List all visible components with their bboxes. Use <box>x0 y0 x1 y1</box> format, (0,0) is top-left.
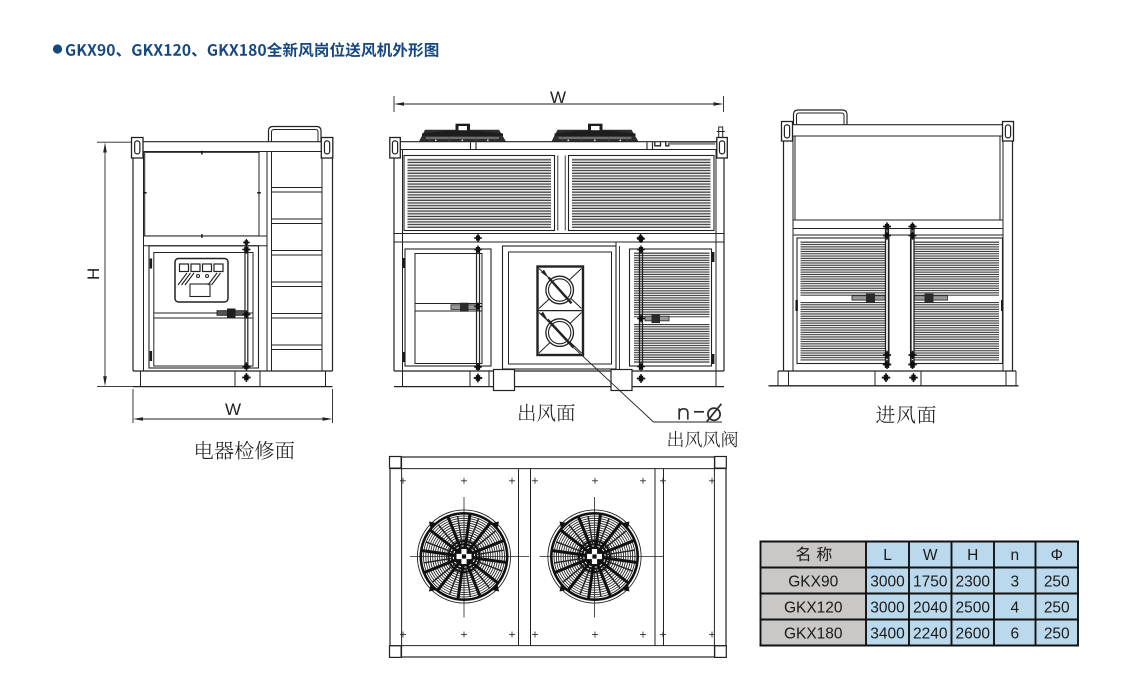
svg-text:H: H <box>967 547 978 564</box>
svg-text:2240: 2240 <box>913 626 948 643</box>
svg-text:W: W <box>225 400 241 419</box>
svg-text:GKX180: GKX180 <box>784 626 843 643</box>
svg-text:2500: 2500 <box>956 600 991 617</box>
svg-text:2300: 2300 <box>956 574 991 591</box>
svg-text:250: 250 <box>1044 600 1070 617</box>
svg-text:W: W <box>550 88 566 107</box>
svg-text:GKX120: GKX120 <box>784 600 843 617</box>
svg-text:n: n <box>1010 547 1019 564</box>
svg-text:Φ: Φ <box>1051 547 1063 564</box>
svg-text:3000: 3000 <box>870 600 905 617</box>
svg-text:2600: 2600 <box>956 626 991 643</box>
svg-text:3000: 3000 <box>870 574 905 591</box>
svg-text:3400: 3400 <box>870 626 905 643</box>
svg-text:H: H <box>84 268 103 280</box>
svg-text:6: 6 <box>1010 626 1019 643</box>
svg-text:2040: 2040 <box>913 600 948 617</box>
svg-text:GKX90: GKX90 <box>788 574 838 591</box>
svg-text:L: L <box>883 547 892 564</box>
svg-text:1750: 1750 <box>913 574 948 591</box>
svg-text:W: W <box>923 547 938 564</box>
svg-text:250: 250 <box>1044 626 1070 643</box>
svg-text:4: 4 <box>1010 600 1019 617</box>
svg-text:3: 3 <box>1010 574 1019 591</box>
svg-text:250: 250 <box>1044 574 1070 591</box>
